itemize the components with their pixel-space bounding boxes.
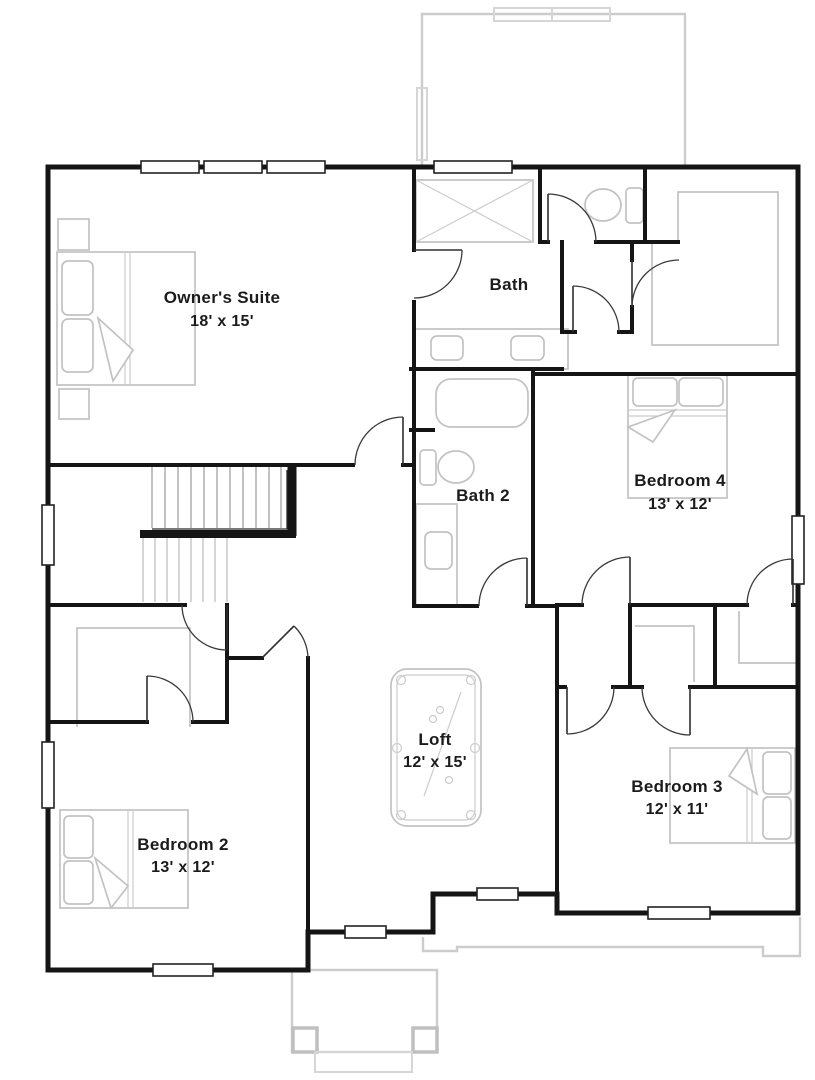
door-bedroom-3 xyxy=(567,687,614,734)
room-label-bedroom-3: Bedroom 3 12' x 11' xyxy=(631,777,723,818)
room-dimensions: 13' x 12' xyxy=(648,496,712,513)
sink-icon xyxy=(425,532,452,569)
porch-post-icon xyxy=(413,1028,437,1052)
window xyxy=(153,964,213,976)
closet-shelf-icon xyxy=(652,192,778,345)
window xyxy=(42,505,54,565)
room-label-bedroom-4: Bedroom 4 13' x 12' xyxy=(634,471,726,513)
room-name: Bedroom 2 xyxy=(137,835,229,854)
door-linen-closet xyxy=(573,286,619,332)
bathtub-icon xyxy=(436,379,528,427)
nightstand-icon xyxy=(59,389,89,419)
room-name: Bedroom 3 xyxy=(631,777,723,796)
closet-shelf-icon xyxy=(635,626,694,682)
closet-shelf-icon xyxy=(739,611,796,663)
window xyxy=(477,888,518,900)
nightstand-icon xyxy=(58,219,89,250)
door-water-closet xyxy=(548,194,596,242)
toilet-icon xyxy=(420,450,474,485)
room-label-bedroom-2: Bedroom 2 13' x 12' xyxy=(137,835,229,876)
closet-shelf-icon xyxy=(77,628,190,727)
room-name: Bath 2 xyxy=(456,486,510,505)
door-owners-suite xyxy=(355,417,403,465)
room-label-owners-suite: Owner's Suite 18' x 15' xyxy=(164,288,281,330)
room-dimensions: 13' x 12' xyxy=(151,859,215,876)
room-name: Bath xyxy=(490,275,529,294)
room-name: Owner's Suite xyxy=(164,288,281,307)
bed-icon xyxy=(57,219,195,419)
room-label-loft: Loft 12' x 15' xyxy=(403,730,467,771)
floor-plan-canvas: Owner's Suite 18' x 15' Bath Bath 2 Bedr… xyxy=(0,0,815,1080)
window xyxy=(434,161,512,173)
door-bedroom-4 xyxy=(582,557,630,605)
room-dimensions: 12' x 11' xyxy=(646,801,709,818)
door-bedroom-4-closet xyxy=(747,559,793,605)
vanity-icon xyxy=(416,504,457,605)
room-labels: Owner's Suite 18' x 15' Bath Bath 2 Bedr… xyxy=(137,275,726,876)
billiard-ball-icon xyxy=(437,707,444,714)
window xyxy=(345,926,386,938)
door-bedroom-2 xyxy=(147,676,193,722)
door-bedroom-3-closet xyxy=(642,687,690,735)
window xyxy=(204,161,262,173)
window xyxy=(141,161,199,173)
window xyxy=(267,161,325,173)
shower-icon xyxy=(416,180,533,242)
floor-plan: Owner's Suite 18' x 15' Bath Bath 2 Bedr… xyxy=(0,0,815,1080)
porch-post-icon xyxy=(293,1028,317,1052)
billiard-ball-icon xyxy=(446,777,453,784)
toilet-icon xyxy=(585,188,643,223)
room-label-bath: Bath xyxy=(490,275,529,294)
room-label-bath-2: Bath 2 xyxy=(456,486,510,505)
door-bath-2 xyxy=(479,558,527,606)
room-dimensions: 18' x 15' xyxy=(190,313,254,330)
sink-icon xyxy=(511,336,544,360)
porch-step-ghost xyxy=(315,1052,412,1072)
billiard-ball-icon xyxy=(430,716,437,723)
room-name: Bedroom 4 xyxy=(634,471,726,490)
room-dimensions: 12' x 15' xyxy=(403,754,467,771)
room-name: Loft xyxy=(418,730,451,749)
staircase-icon xyxy=(140,466,296,602)
vanity-icon xyxy=(413,329,568,369)
first-floor-footprint-ghost xyxy=(423,917,800,956)
upper-ghost-room-outline xyxy=(422,14,685,167)
door-walkin-closet xyxy=(632,260,679,307)
door-loft-hall-angled xyxy=(262,626,308,658)
door-owners-bath xyxy=(414,250,462,298)
sink-icon xyxy=(431,336,463,360)
window xyxy=(42,742,54,808)
window xyxy=(648,907,710,919)
